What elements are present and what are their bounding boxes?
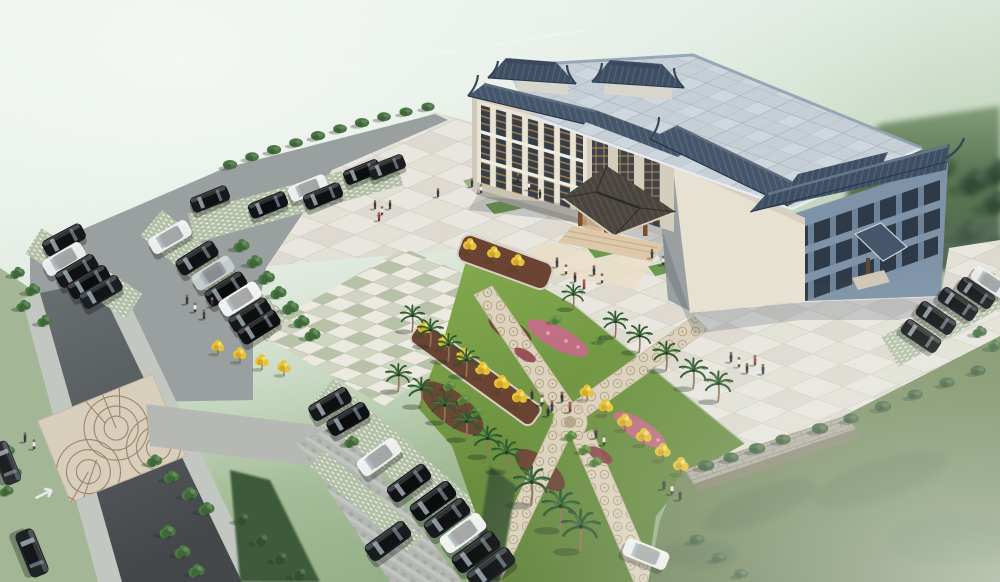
fog-bottom-right [0, 0, 1000, 582]
architectural-rendering [0, 0, 1000, 582]
